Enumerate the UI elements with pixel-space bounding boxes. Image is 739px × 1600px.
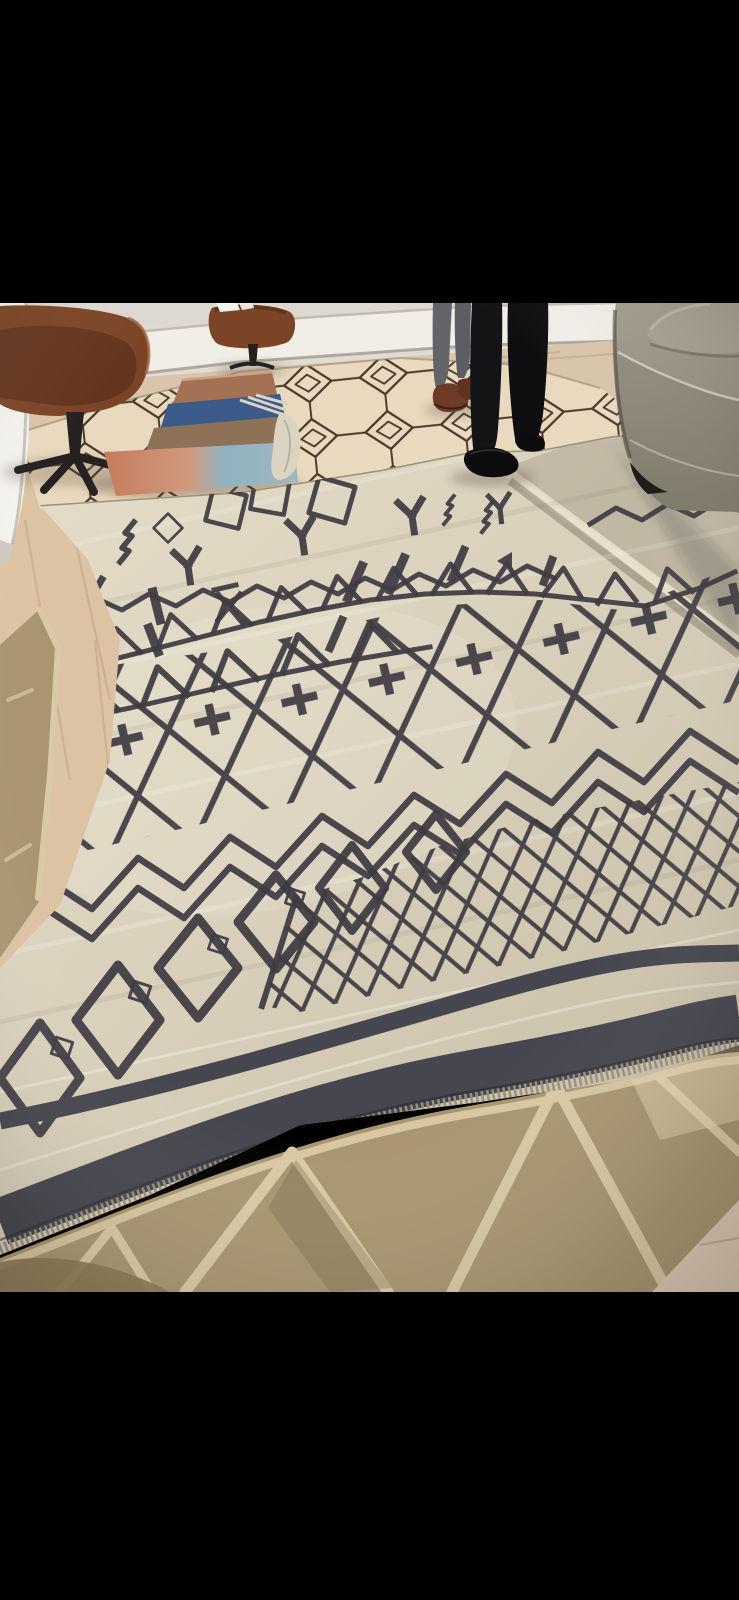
photo-canvas [0, 0, 739, 1600]
photo-scene [0, 300, 739, 1292]
vignette-overlay [0, 303, 739, 1292]
photo [0, 0, 739, 1600]
